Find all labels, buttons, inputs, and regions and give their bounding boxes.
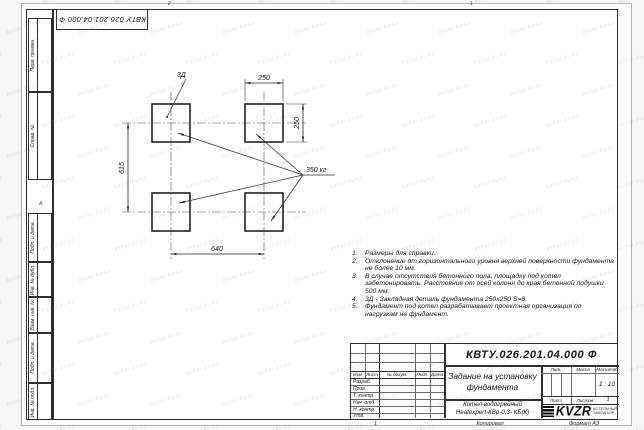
top-zone-mark-right: 1	[470, 1, 473, 7]
tb-sheets-total: 1	[601, 396, 615, 404]
dim-spacing-640: 640	[211, 246, 223, 253]
tb-product-name: Котел водогрейный Heatexpert-КВр-0,3- КБ…	[444, 399, 541, 418]
watermark-text: kvzar.kv.kz	[0, 51, 4, 67]
kvzr-logo-text: KVZR	[556, 404, 591, 418]
field-inv-no-dubl: Инв. № дубл.	[28, 262, 52, 297]
field-sprav-no: Справ. №	[28, 92, 52, 180]
tb-header-izm: Изм.	[351, 371, 365, 378]
field-inv-no-podl: Инв. № подл.	[28, 383, 52, 420]
drawing-sheet: 2 1 А КВТУ 026.201.04.000 Ф Перв. примен…	[0, 0, 644, 430]
field-label-cell: Взам. инв. №	[29, 298, 38, 332]
dim-spacing-615: 615	[119, 162, 126, 174]
footer-copied-label: Копировал	[430, 421, 550, 427]
foundation-plan-drawing: 250 250 615 640 3Д 350 кг	[90, 55, 350, 270]
footer-format-label: Формат А3	[552, 421, 616, 427]
tb-logo-cell: KVZR КОТЕЛЬНЫЙ ЗАВОД КЗР	[541, 404, 619, 418]
field-label: Подп. и дата	[30, 342, 36, 373]
watermark-text: kvzar.kv.kz	[0, 237, 4, 253]
tb-header-list2: Лист	[541, 396, 571, 404]
tb-title-line1: Задание на установку	[448, 371, 537, 382]
tb-header-masshtab: Масштаб	[595, 365, 619, 373]
field-label: Подп. и дата	[30, 222, 36, 253]
watermark-text: kvzar.kv.kz	[0, 423, 4, 430]
tb-row-n-kontr: Н. контр.	[351, 406, 379, 413]
note-item: 3.В случае отсутствия бетонного пола, пл…	[352, 273, 614, 296]
note-number: 4.	[352, 296, 365, 304]
leader-lines	[166, 79, 335, 221]
field-label-cell: Инв. № дубл.	[29, 263, 38, 296]
kvzr-logo-icon	[543, 406, 554, 417]
field-label: Инв. № подл.	[30, 386, 36, 417]
tb-header-podp: Подп.	[415, 371, 430, 378]
label-embedded-part-3d: 3Д	[177, 72, 186, 79]
field-perv-primen: Перв. примен.	[28, 18, 52, 92]
note-number: 1.	[352, 250, 365, 258]
dimension-lines	[127, 82, 304, 255]
tb-title-line2: фундамента	[467, 382, 518, 393]
note-number: 3.	[352, 273, 365, 296]
field-label: Инв. № дубл.	[30, 264, 36, 295]
notes-list: 1.Размеры для справки. 2.Отклонение от г…	[352, 250, 614, 318]
stamp-doc-number: КВТУ 026.201.04.000 Ф	[59, 15, 146, 24]
note-item: 2.Отклонение от горизонтального уровня в…	[352, 258, 614, 273]
field-label: Перв. примен.	[30, 38, 36, 71]
note-number: 2.	[352, 258, 365, 273]
note-item: 1.Размеры для справки.	[352, 250, 614, 258]
watermark-text: kvzar.kv.kz	[0, 113, 4, 129]
title-block: Изм. Лист № докум. Подп. Дата Разраб. Пр…	[350, 343, 618, 420]
tb-doc-number: КВТУ.026.201.04.000 Ф	[444, 344, 619, 365]
tagline-line1: КОТЕЛЬНЫЙ	[593, 407, 617, 411]
field-label-cell: Перв. примен.	[29, 19, 38, 91]
tagline-line2: ЗАВОД КЗР	[593, 411, 614, 415]
note-text: Отклонение от горизонтального уровня вер…	[365, 258, 614, 273]
frame-inner-left-line	[52, 9, 54, 420]
tb-header-data: Дата	[430, 371, 444, 378]
tb-row-utv: Утв.	[351, 413, 379, 419]
note-text: Фундамент под котел разрабатывает проект…	[365, 303, 614, 318]
tb-header-docnum: № докум.	[379, 371, 415, 378]
centerlines	[122, 92, 306, 259]
field-label-cell: Подп. и дата	[29, 214, 38, 261]
field-label: Взам. инв. №	[30, 300, 36, 331]
tb-product-line1: Котел водогрейный	[463, 401, 522, 409]
dim-height-250: 250	[294, 117, 301, 130]
field-podp-i-data-1: Подп. и дата	[28, 213, 52, 262]
note-number: 5.	[352, 303, 365, 318]
tb-row-nach-otd: Нач. отд.	[351, 399, 379, 406]
rotated-doc-number-stamp: КВТУ 026.201.04.000 Ф	[56, 9, 148, 30]
field-podp-i-data-2: Подп. и дата	[28, 333, 52, 383]
note-text: Размеры для справки.	[365, 250, 614, 258]
tb-drawing-title: Задание на установку фундамента	[444, 365, 541, 399]
field-label: Справ. №	[30, 125, 36, 148]
field-label-cell: Справ. №	[29, 93, 38, 179]
tb-product-line2: Heatexpert-КВр-0,3- КБ(К)	[456, 409, 529, 417]
note-item: 5.Фундамент под котел разрабатывает прое…	[352, 303, 614, 318]
field-label-cell: Подп. и дата	[29, 334, 38, 382]
watermark-text: kvzar.kv.kz	[0, 299, 4, 315]
tb-header-list: Лист	[365, 371, 379, 378]
kvzr-logo-tagline: КОТЕЛЬНЫЙ ЗАВОД КЗР	[593, 407, 617, 416]
dim-width-250: 250	[257, 75, 270, 82]
tb-header-lit: Лит.	[541, 365, 571, 373]
watermark-text: kvzar.kv.kz	[0, 361, 4, 377]
top-zone-mark-left: 2	[168, 1, 171, 7]
tb-row-razrab: Разраб.	[351, 378, 379, 385]
tb-header-listov: Листов	[572, 396, 598, 404]
tb-header-massa: Масса	[571, 365, 595, 373]
left-zone-mark: А	[39, 201, 43, 207]
tb-row-prov: Пров.	[351, 385, 379, 392]
extension-lines	[245, 79, 307, 142]
field-vzam-inv-no: Взам. инв. №	[28, 297, 52, 333]
dimension-texts: 250 250 615 640 3Д 350 кг	[119, 72, 327, 253]
note-text: В случае отсутствия бетонного пола, площ…	[365, 273, 614, 296]
footer-sheet-mark: 1	[374, 421, 377, 427]
field-label-cell: Инв. № подл.	[29, 384, 38, 419]
watermark-text: kvzar.kv.kz	[0, 0, 4, 5]
tb-scale-value: 1 : 10	[595, 373, 619, 396]
watermark-text: kvzar.kv.kz	[0, 175, 4, 191]
label-load-350kg: 350 кг	[306, 167, 327, 174]
tb-row-t-kontr: Т. контр.	[351, 392, 379, 399]
